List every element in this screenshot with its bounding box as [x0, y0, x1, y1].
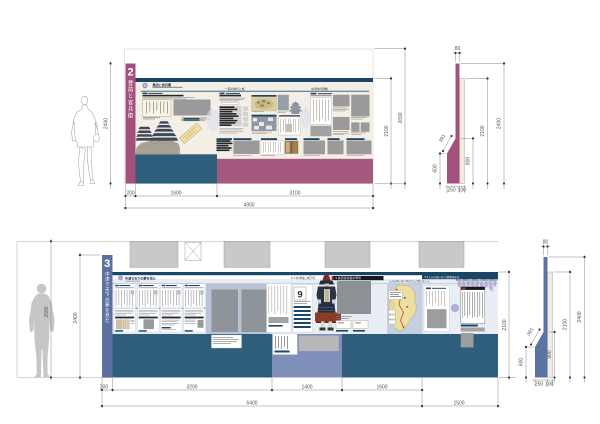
- svg-text:中津時代群像: 中津時代群像: [311, 87, 328, 91]
- svg-text:中津で天下の夢を見た: 中津で天下の夢を見た: [125, 276, 156, 281]
- svg-text:衛: 衛: [128, 112, 134, 120]
- svg-text:3100: 3100: [289, 190, 300, 196]
- svg-text:3: 3: [104, 258, 110, 270]
- svg-text:を: を: [105, 307, 110, 313]
- svg-text:100: 100: [545, 381, 554, 387]
- svg-text:80: 80: [455, 46, 461, 52]
- svg-text:4900: 4900: [243, 202, 254, 208]
- svg-text:2: 2: [127, 67, 133, 79]
- svg-text:2100: 2100: [480, 125, 486, 136]
- svg-text:2100: 2100: [502, 319, 508, 330]
- svg-text:九州の関ヶ原と呼ばれた合戦があった: 九州の関ヶ原と呼ばれた合戦があった: [389, 279, 430, 283]
- svg-text:100: 100: [458, 188, 467, 194]
- svg-text:5.9 九州の関ヶ原 合戦関連年表: 5.9 九州の関ヶ原 合戦関連年表: [425, 275, 460, 279]
- svg-text:2400: 2400: [73, 312, 79, 323]
- svg-text:3200: 3200: [186, 384, 197, 390]
- svg-text:900: 900: [466, 157, 472, 166]
- svg-text:200: 200: [126, 190, 135, 196]
- svg-text:と: と: [128, 93, 133, 100]
- svg-text:2400: 2400: [104, 118, 110, 129]
- svg-text:9 黒田官兵衛の甲冑: 9 黒田官兵衛の甲冑: [336, 275, 362, 280]
- svg-text:600: 600: [433, 164, 439, 173]
- svg-text:兵: 兵: [128, 105, 134, 113]
- svg-text:1600: 1600: [170, 190, 181, 196]
- svg-text:2100: 2100: [384, 125, 390, 136]
- svg-text:1500: 1500: [453, 400, 464, 406]
- svg-text:黒田と官兵衛: 黒田と官兵衛: [153, 82, 172, 87]
- svg-text:一期の時代と城: 一期の時代と城: [225, 87, 245, 91]
- svg-text:官: 官: [128, 99, 133, 107]
- svg-text:前: 前: [128, 86, 134, 94]
- svg-text:2690: 2690: [44, 306, 50, 317]
- svg-text:80: 80: [543, 240, 549, 246]
- svg-text:9: 9: [297, 290, 302, 301]
- svg-text:6400: 6400: [246, 400, 257, 406]
- svg-text:豊: 豊: [128, 79, 134, 87]
- svg-text:250: 250: [535, 381, 544, 387]
- svg-text:600: 600: [519, 358, 525, 367]
- svg-text:900: 900: [547, 350, 553, 359]
- svg-text:2400: 2400: [577, 311, 583, 322]
- svg-text:1400: 1400: [301, 384, 312, 390]
- svg-text:2690: 2690: [398, 112, 404, 123]
- svg-text:5.1 中津城と城下町: 5.1 中津城と城下町: [291, 276, 315, 280]
- svg-text:2100: 2100: [563, 319, 569, 330]
- svg-text:200: 200: [100, 384, 109, 390]
- svg-text:250: 250: [447, 188, 456, 194]
- svg-text:2400: 2400: [497, 118, 503, 129]
- svg-text:1600: 1600: [376, 384, 387, 390]
